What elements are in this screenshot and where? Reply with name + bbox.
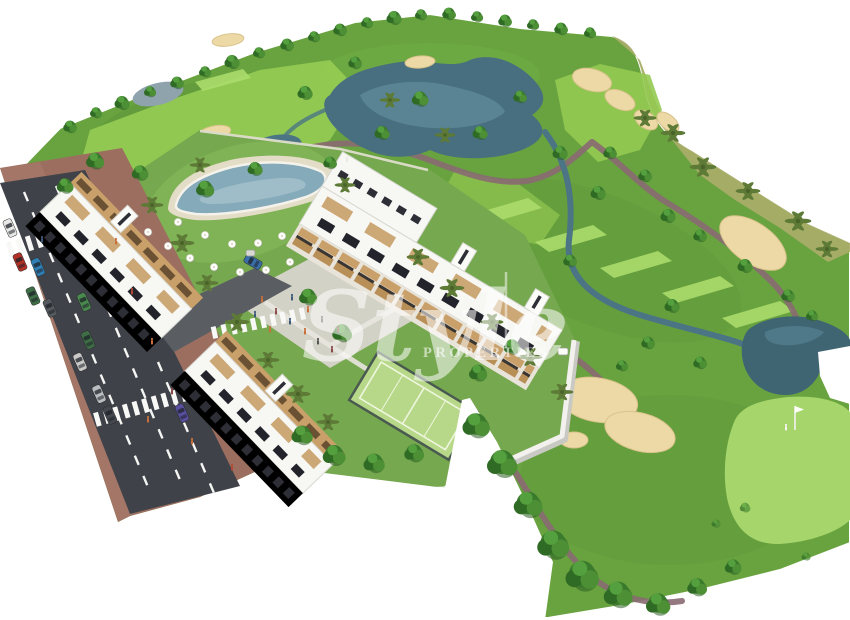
golfer [346, 157, 348, 162]
watermark-script: Style [302, 270, 569, 383]
putting-green [725, 397, 850, 544]
pedestrian [115, 238, 117, 245]
pedestrian [254, 311, 256, 318]
pedestrian [261, 296, 263, 303]
pedestrian [275, 308, 277, 315]
pedestrian [151, 338, 153, 345]
pedestrian [147, 416, 149, 423]
golfer [785, 424, 787, 431]
watermark: Style PROPERTIES [302, 270, 569, 383]
pedestrian [131, 288, 133, 295]
pedestrian [291, 294, 293, 301]
pedestrian [41, 236, 43, 243]
pedestrian [289, 318, 291, 325]
pedestrian [231, 464, 233, 471]
pedestrian [171, 388, 173, 395]
render-scene: Style PROPERTIES [0, 0, 850, 620]
pedestrian [269, 326, 271, 333]
watermark-caption: PROPERTIES [423, 345, 550, 361]
golf-cart [246, 250, 255, 256]
architectural-render: Style PROPERTIES [0, 0, 850, 620]
pedestrian [191, 438, 193, 445]
